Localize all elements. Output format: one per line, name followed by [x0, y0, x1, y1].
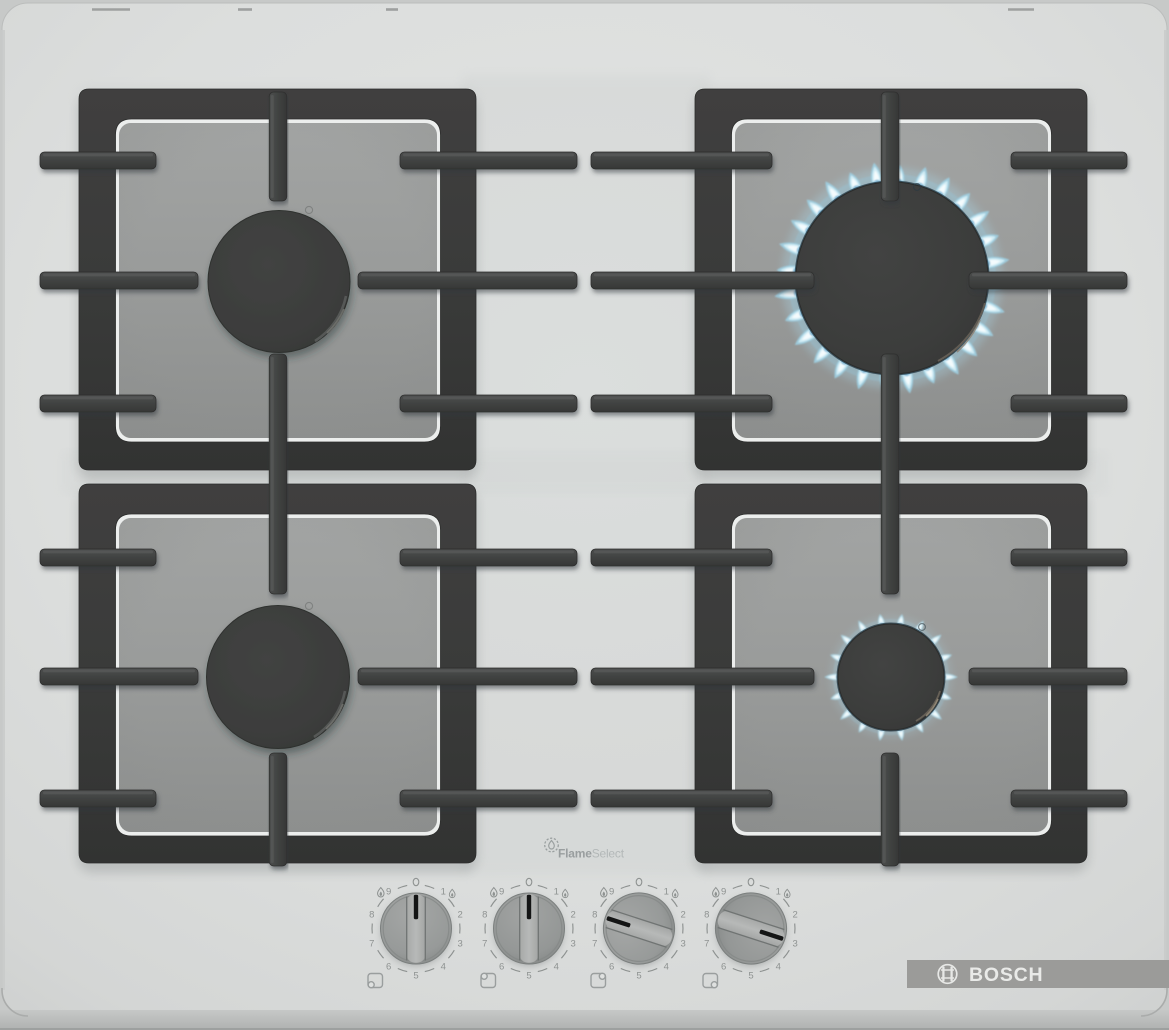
- svg-text:7: 7: [482, 938, 487, 949]
- svg-text:5: 5: [636, 970, 641, 981]
- svg-text:2: 2: [793, 910, 798, 921]
- svg-text:4: 4: [664, 962, 669, 973]
- svg-text:8: 8: [482, 910, 487, 921]
- svg-text:1: 1: [664, 886, 669, 897]
- svg-text:9: 9: [499, 886, 504, 897]
- svg-text:3: 3: [458, 938, 463, 949]
- svg-text:8: 8: [592, 910, 597, 921]
- svg-text:1: 1: [554, 886, 559, 897]
- svg-text:8: 8: [704, 910, 709, 921]
- svg-text:4: 4: [554, 962, 559, 973]
- svg-text:FlameSelect: FlameSelect: [558, 847, 625, 861]
- svg-text:7: 7: [704, 938, 709, 949]
- svg-text:5: 5: [526, 970, 531, 981]
- svg-text:5: 5: [748, 970, 753, 981]
- svg-text:9: 9: [721, 886, 726, 897]
- svg-text:4: 4: [776, 962, 781, 973]
- svg-text:2: 2: [681, 910, 686, 921]
- svg-text:9: 9: [609, 886, 614, 897]
- svg-text:6: 6: [721, 962, 726, 973]
- svg-text:2: 2: [571, 910, 576, 921]
- svg-text:1: 1: [776, 886, 781, 897]
- svg-text:7: 7: [369, 938, 374, 949]
- svg-text:2: 2: [458, 910, 463, 921]
- svg-text:4: 4: [441, 962, 446, 973]
- svg-text:6: 6: [499, 962, 504, 973]
- svg-text:3: 3: [681, 938, 686, 949]
- svg-text:BOSCH: BOSCH: [969, 964, 1043, 986]
- svg-text:6: 6: [386, 962, 391, 973]
- svg-text:5: 5: [413, 970, 418, 981]
- svg-text:3: 3: [793, 938, 798, 949]
- svg-text:6: 6: [609, 962, 614, 973]
- svg-text:7: 7: [592, 938, 597, 949]
- svg-text:1: 1: [441, 886, 446, 897]
- svg-text:3: 3: [571, 938, 576, 949]
- svg-text:8: 8: [369, 910, 374, 921]
- svg-text:9: 9: [386, 886, 391, 897]
